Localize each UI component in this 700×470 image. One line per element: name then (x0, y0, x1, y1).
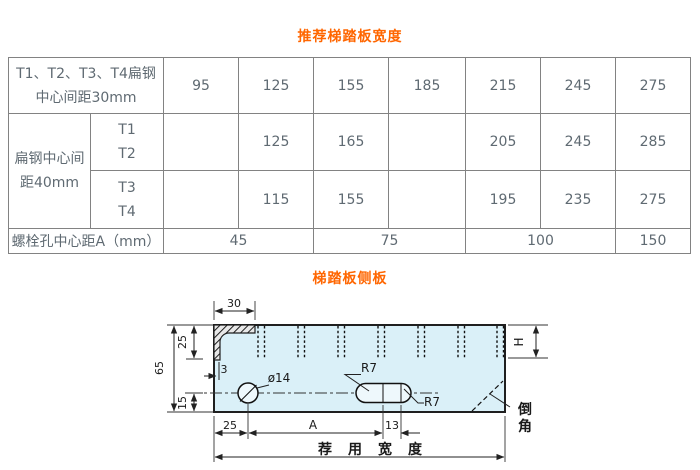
page-title: 推荐梯踏板宽度 (0, 26, 700, 46)
row23-header-line2: 距40mm (9, 171, 90, 195)
table-cell: 195 (466, 171, 541, 229)
table-cell: 125 (239, 114, 314, 171)
row2-subheader: T1 T2 (91, 114, 164, 171)
row23-header: 扁钢中心间 距40mm (9, 114, 91, 229)
dim-hole-offset: 25 (223, 419, 237, 432)
table-row: T3 T4 115 155 195 235 275 (9, 171, 691, 229)
table-cell: 155 (314, 58, 389, 114)
table-cell: 100 (466, 229, 616, 254)
table-cell: 275 (616, 58, 691, 114)
dim-thickness: 3 (221, 363, 228, 376)
table-cell: 275 (616, 171, 691, 229)
table-row: 螺栓孔中心距A（mm） 45 75 100 150 (9, 229, 691, 254)
dim-slot-pitch: 13 (385, 419, 399, 432)
dim-hole-spacing: A (309, 418, 318, 432)
table-cell (389, 114, 466, 171)
row3-subheader: T3 T4 (91, 171, 164, 229)
dim-top-width: 30 (227, 297, 241, 310)
table-cell: 235 (541, 171, 616, 229)
dim-right-depth: H (512, 337, 526, 346)
table-cell: 95 (164, 58, 239, 114)
table-cell: 75 (314, 229, 466, 254)
row4-header: 螺栓孔中心距A（mm） (9, 229, 164, 254)
dim-left-lower: 15 (176, 396, 189, 410)
table-cell: 205 (466, 114, 541, 171)
row1-header: T1、T2、T3、T4扁钢 中心间距30mm (9, 58, 164, 114)
table-cell: 245 (541, 58, 616, 114)
table-cell (389, 171, 466, 229)
table-cell (164, 114, 239, 171)
row1-header-line2: 中心间距30mm (9, 86, 163, 110)
section-title-side-plate: 梯踏板侧板 (0, 268, 700, 288)
sub-label-t4: T4 (91, 200, 163, 224)
row23-header-line1: 扁钢中心间 (9, 147, 90, 171)
table-cell: 125 (239, 58, 314, 114)
dim-left-upper: 25 (176, 335, 189, 349)
label-chamfer-char2: 角 (518, 418, 532, 435)
table-cell: 165 (314, 114, 389, 171)
label-overall-width: 荐用宽度 (318, 441, 438, 458)
table-cell: 155 (314, 171, 389, 229)
table-row: 扁钢中心间 距40mm T1 T2 125 165 205 245 285 (9, 114, 691, 171)
row1-header-line1: T1、T2、T3、T4扁钢 (9, 62, 163, 86)
table-cell: 185 (389, 58, 466, 114)
table-cell: 215 (466, 58, 541, 114)
dim-slot-radius-top: R7 (361, 361, 377, 375)
sub-label-t2: T2 (91, 142, 163, 166)
table-cell: 285 (616, 114, 691, 171)
dim-hole-dia: ø14 (268, 371, 291, 385)
table-cell: 150 (616, 229, 691, 254)
table-cell: 245 (541, 114, 616, 171)
dim-slot-radius-bottom: R7 (424, 395, 440, 409)
table-row: T1、T2、T3、T4扁钢 中心间距30mm 95 125 155 185 21… (9, 58, 691, 114)
sub-label-t1: T1 (91, 118, 163, 142)
table-cell (164, 171, 239, 229)
label-chamfer-char1: 倒 (517, 401, 532, 418)
dim-left-total: 65 (153, 361, 166, 375)
side-plate-drawing: 30 65 25 15 3 ø14 R7 R7 H 25 A 13 荐用宽度 倒… (140, 288, 570, 470)
sub-label-t3: T3 (91, 176, 163, 200)
tread-width-table: T1、T2、T3、T4扁钢 中心间距30mm 95 125 155 185 21… (8, 57, 691, 254)
table-cell: 45 (164, 229, 314, 254)
table-cell: 115 (239, 171, 314, 229)
